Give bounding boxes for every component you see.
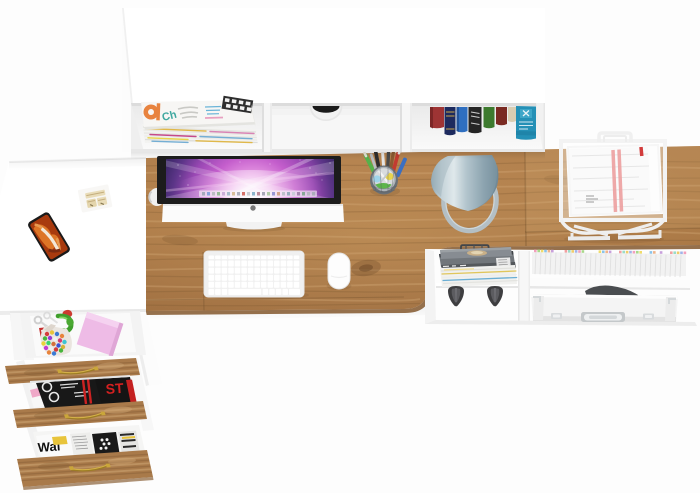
svg-text:ST: ST <box>105 380 124 397</box>
